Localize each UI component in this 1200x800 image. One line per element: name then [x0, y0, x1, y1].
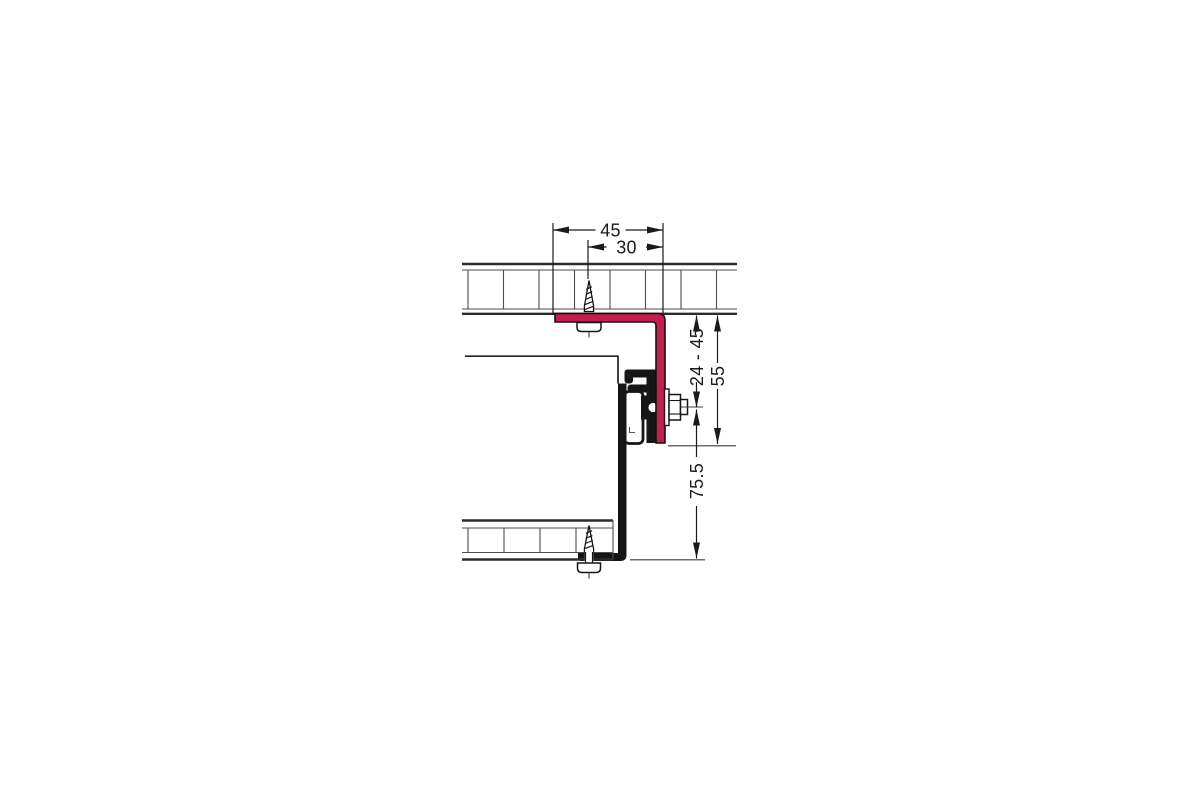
drawing-background — [0, 0, 1200, 800]
adjuster-housing — [625, 392, 644, 444]
dimension-75-5-label: 75.5 — [687, 463, 707, 499]
section-drawing: 45 30 — [0, 0, 1200, 800]
dimension-55-label: 55 — [708, 366, 728, 387]
screw-head — [578, 563, 601, 573]
dimension-30-label: 30 — [616, 238, 637, 258]
screw-head — [577, 323, 601, 332]
dimension-24-45-label: 24 - 45 — [687, 328, 707, 386]
technical-drawing-canvas: 45 30 — [0, 0, 1200, 800]
bolt-nut — [669, 395, 681, 421]
